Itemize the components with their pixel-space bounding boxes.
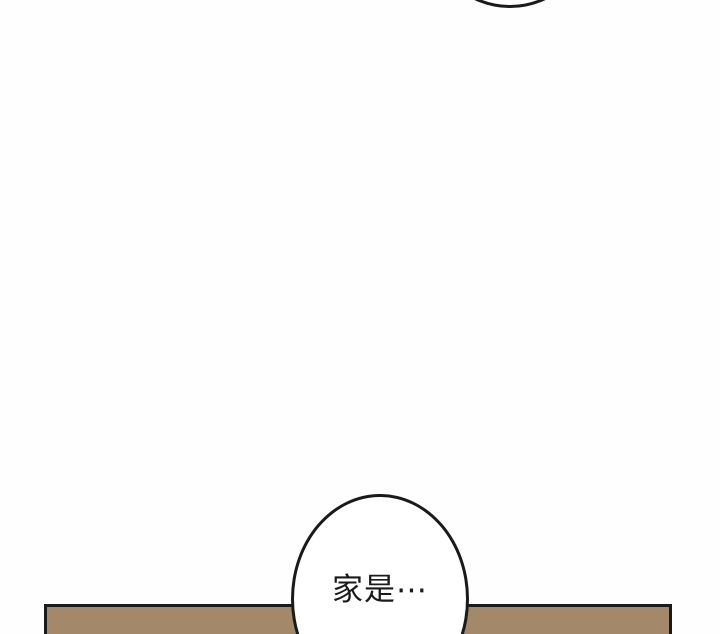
top-speech-bubble-partial — [428, 0, 592, 8]
speech-bubble: 家是⋯ — [291, 494, 469, 634]
comic-panel: 家是⋯ — [0, 0, 720, 634]
speech-text: 家是⋯ — [294, 573, 466, 607]
